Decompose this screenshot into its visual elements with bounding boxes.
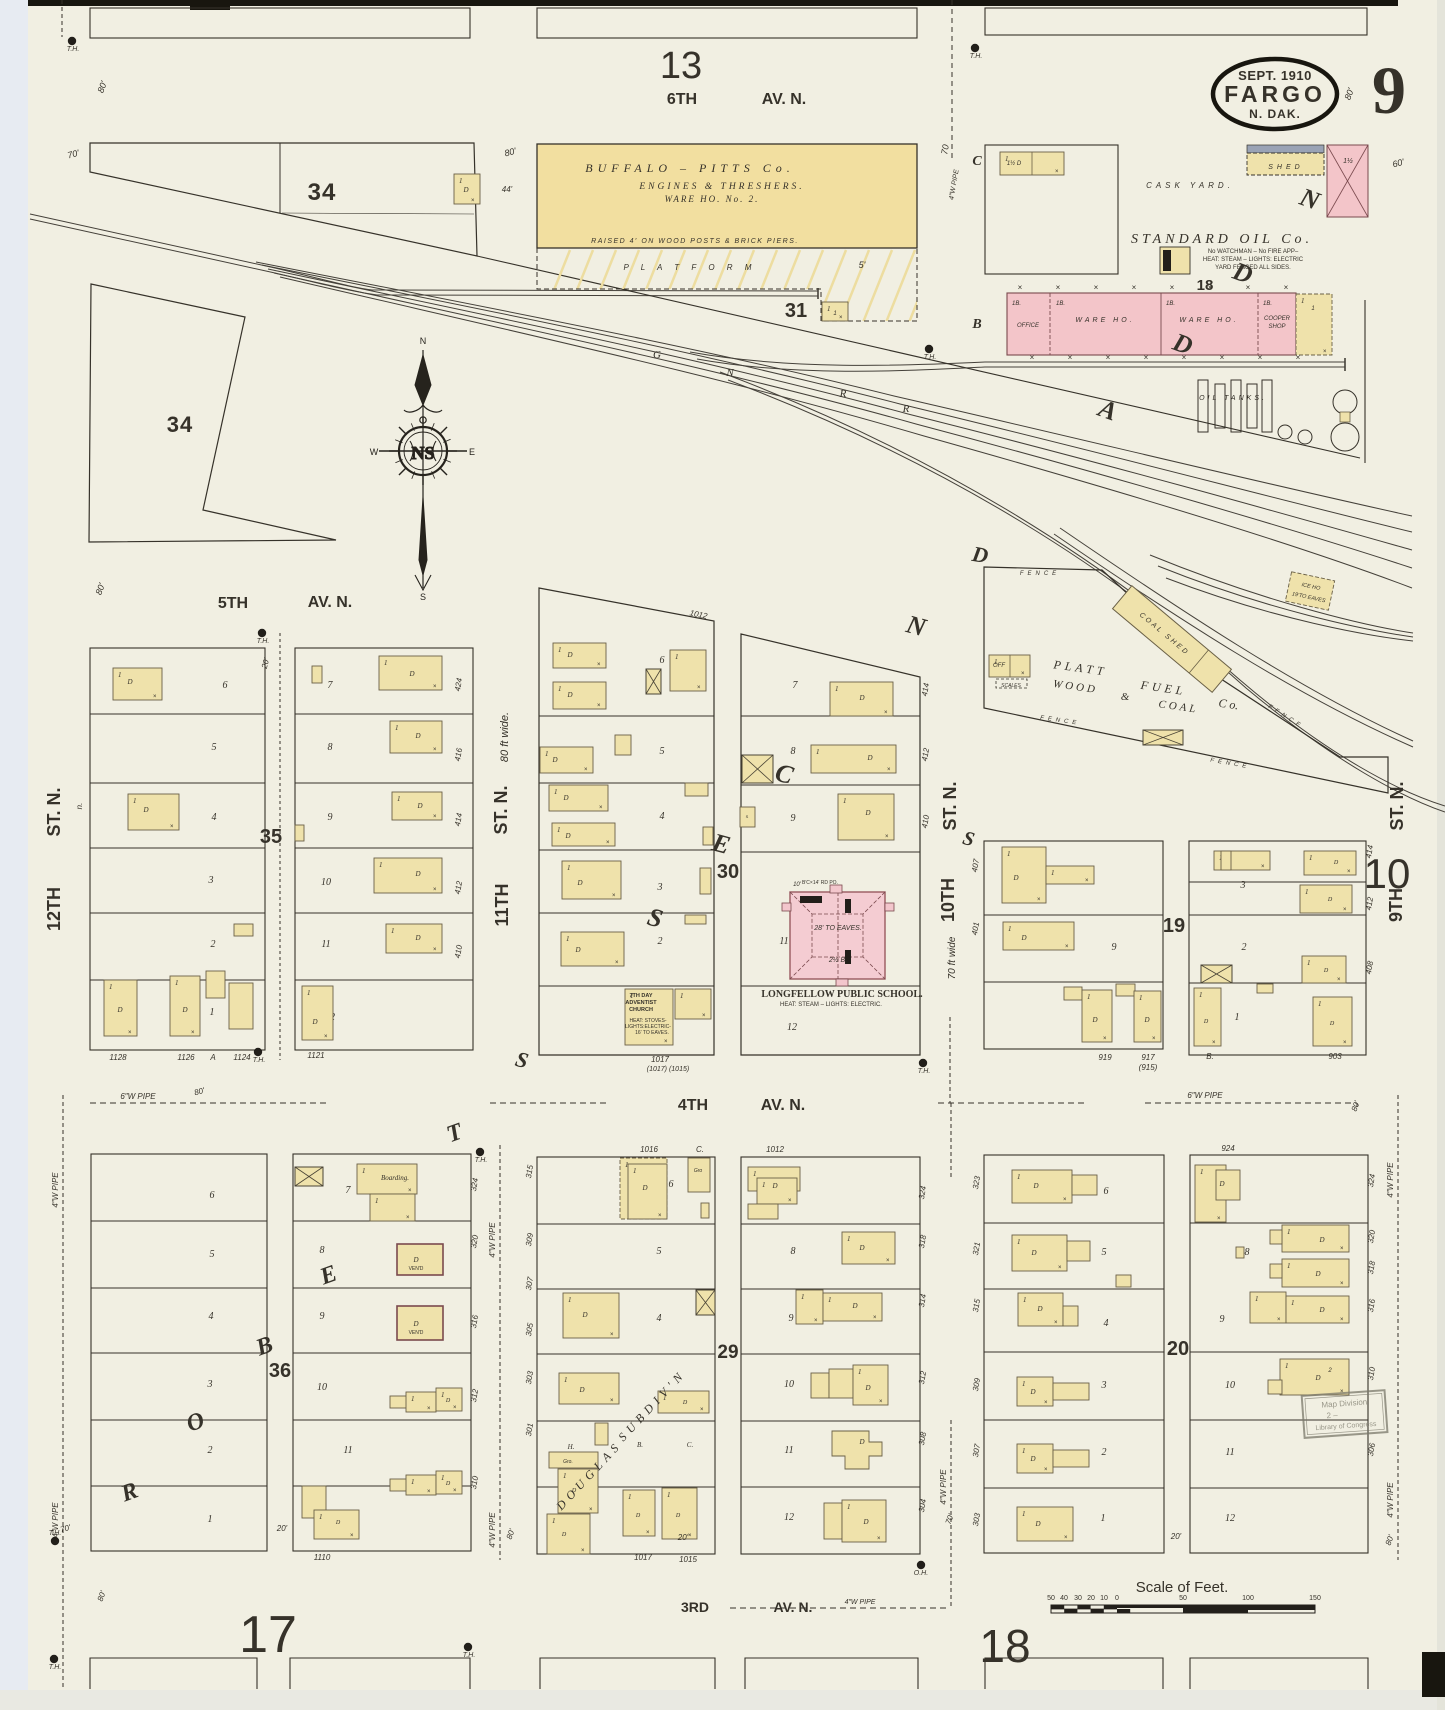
svg-text:1: 1: [564, 1376, 568, 1384]
svg-text:D: D: [1020, 934, 1026, 942]
svg-text:×: ×: [610, 1398, 614, 1404]
svg-text:1: 1: [1307, 959, 1311, 967]
svg-text:D: D: [574, 946, 580, 954]
svg-text:4″W PIPE: 4″W PIPE: [51, 1172, 60, 1208]
svg-text:D: D: [1318, 1236, 1324, 1244]
svg-text:T.H.: T.H.: [253, 1057, 266, 1064]
svg-text:×: ×: [433, 747, 437, 753]
svg-text:1: 1: [847, 1503, 851, 1511]
svg-text:STANDARD OIL Co.: STANDARD OIL Co.: [1131, 232, 1313, 247]
svg-text:D: D: [1029, 1455, 1035, 1463]
svg-text:T.H.: T.H.: [918, 1068, 931, 1075]
svg-text:D: D: [1218, 1180, 1224, 1188]
svg-text:1: 1: [1007, 850, 1011, 858]
svg-text:1: 1: [827, 305, 831, 313]
svg-text:20': 20': [677, 1533, 689, 1542]
svg-text:1B.: 1B.: [1056, 301, 1065, 307]
svg-text:5: 5: [660, 746, 665, 757]
svg-text:D: D: [311, 1018, 317, 1026]
svg-text:×: ×: [658, 1213, 662, 1219]
svg-text:1: 1: [558, 685, 562, 693]
svg-text:1121: 1121: [307, 1051, 324, 1060]
svg-text:N: N: [725, 367, 734, 379]
svg-text:×: ×: [1132, 283, 1137, 292]
svg-text:D: D: [412, 1320, 418, 1328]
svg-text:17: 17: [239, 1606, 297, 1664]
svg-text:FARGO: FARGO: [1224, 81, 1326, 107]
svg-text:2: 2: [1327, 1368, 1332, 1374]
svg-text:D: D: [576, 879, 582, 887]
svg-text:100: 100: [1242, 1595, 1254, 1602]
svg-text:50: 50: [1179, 1595, 1187, 1602]
svg-text:44': 44': [502, 185, 513, 194]
svg-text:917: 917: [1141, 1053, 1155, 1062]
svg-text:ST. N.: ST. N.: [1387, 781, 1407, 830]
svg-text:D: D: [566, 691, 572, 699]
svg-text:1: 1: [667, 1491, 671, 1499]
svg-text:1: 1: [628, 1493, 632, 1501]
svg-text:ST. N.: ST. N.: [940, 781, 960, 830]
svg-text:1B.: 1B.: [1263, 301, 1272, 307]
svg-text:RAISED 4′ ON WOOD POSTS & BRIC: RAISED 4′ ON WOOD POSTS & BRICK PIERS.: [591, 238, 799, 245]
svg-text:D: D: [858, 1244, 864, 1252]
svg-text:×: ×: [1021, 671, 1025, 677]
svg-text:903: 903: [1328, 1052, 1342, 1061]
svg-text:10: 10: [321, 877, 331, 888]
svg-text:FENCE: FENCE: [1020, 571, 1060, 577]
svg-text:34: 34: [167, 412, 193, 437]
svg-text:×: ×: [453, 1488, 457, 1494]
svg-text:×: ×: [1094, 283, 1099, 292]
svg-text:16′ TO EAVES.: 16′ TO EAVES.: [635, 1030, 669, 1036]
svg-text:×: ×: [1058, 1265, 1062, 1271]
svg-text:30: 30: [1074, 1595, 1082, 1602]
svg-text:COOPER: COOPER: [1264, 316, 1291, 322]
svg-text:×: ×: [877, 1536, 881, 1542]
svg-text:1016: 1016: [640, 1145, 658, 1154]
svg-text:×: ×: [873, 1315, 877, 1321]
svg-text:D: D: [1034, 1520, 1040, 1528]
svg-text:1: 1: [459, 177, 463, 185]
svg-text:D: D: [851, 1302, 857, 1310]
svg-text:1: 1: [762, 1181, 766, 1189]
svg-text:×: ×: [599, 805, 603, 811]
svg-text:R: R: [839, 388, 847, 400]
svg-text:B: B: [971, 317, 981, 332]
svg-text:9: 9: [791, 813, 796, 824]
svg-text:D: D: [445, 1481, 451, 1487]
svg-text:9: 9: [789, 1313, 794, 1324]
svg-text:4″W PIPE: 4″W PIPE: [51, 1502, 60, 1538]
svg-text:8: 8: [320, 1245, 325, 1256]
svg-text:×: ×: [1340, 1246, 1344, 1252]
svg-text:5: 5: [657, 1246, 662, 1257]
svg-text:20': 20': [1170, 1532, 1182, 1541]
svg-text:×: ×: [1220, 353, 1225, 362]
svg-text:4″W PIPE: 4″W PIPE: [1386, 1162, 1395, 1198]
svg-text:1: 1: [1287, 1228, 1291, 1236]
svg-text:WARE HO. No. 2.: WARE HO. No. 2.: [665, 194, 760, 204]
svg-text:×: ×: [597, 662, 601, 668]
svg-text:×: ×: [702, 1013, 706, 1019]
svg-text:D: D: [1029, 1388, 1035, 1396]
svg-text:4TH: 4TH: [678, 1097, 708, 1114]
svg-text:1: 1: [633, 1167, 637, 1175]
svg-text:×: ×: [581, 1548, 585, 1554]
svg-text:D: D: [462, 186, 468, 194]
svg-text:1: 1: [1017, 1173, 1021, 1181]
svg-text:9: 9: [1372, 52, 1406, 128]
svg-text:35: 35: [260, 826, 282, 848]
svg-text:HEAT: STEAM – LIGHTS: ELECTRIC: HEAT: STEAM – LIGHTS: ELECTRIC.: [780, 1002, 882, 1008]
svg-text:6: 6: [669, 1179, 674, 1190]
svg-text:×: ×: [697, 685, 701, 691]
svg-text:×: ×: [471, 198, 475, 204]
svg-text:2 –: 2 –: [1326, 1410, 1338, 1420]
svg-text:924: 924: [1221, 1144, 1235, 1153]
svg-text:n.: n.: [75, 803, 84, 810]
svg-text:9: 9: [1220, 1314, 1225, 1325]
svg-text:Gro: Gro: [694, 1168, 703, 1174]
svg-text:H.: H.: [567, 1443, 575, 1451]
svg-text:C.: C.: [696, 1145, 704, 1154]
svg-text:BUFFALO – PITTS Co.: BUFFALO – PITTS Co.: [585, 161, 794, 175]
svg-text:1: 1: [675, 653, 679, 661]
svg-text:D: D: [1012, 874, 1018, 882]
svg-text:D: D: [1318, 1306, 1324, 1314]
svg-text:4″W PIPE: 4″W PIPE: [488, 1222, 497, 1258]
svg-text:1: 1: [828, 1296, 832, 1304]
svg-text:1015: 1015: [679, 1555, 697, 1564]
svg-text:D: D: [414, 732, 420, 740]
svg-text:D: D: [675, 1513, 681, 1519]
svg-text:1: 1: [1200, 1168, 1204, 1176]
svg-text:D: D: [335, 1520, 341, 1526]
svg-text:4″W PIPE: 4″W PIPE: [1386, 1482, 1395, 1518]
svg-text:ADVENTIST: ADVENTIST: [625, 1000, 657, 1006]
svg-text:T.H.: T.H.: [67, 46, 80, 53]
svg-text:×: ×: [1054, 1320, 1058, 1326]
svg-text:P L A T F O R M: P L A T F O R M: [624, 263, 757, 272]
svg-text:×: ×: [1217, 1216, 1221, 1222]
svg-text:×: ×: [1068, 353, 1073, 362]
svg-text:D: D: [858, 694, 864, 702]
svg-text:11TH: 11TH: [492, 883, 512, 926]
svg-text:×: ×: [427, 1489, 431, 1495]
svg-text:1: 1: [1087, 993, 1091, 1001]
svg-text:×: ×: [884, 710, 888, 716]
svg-text:N. DAK.: N. DAK.: [1249, 107, 1301, 121]
svg-text:ST. N.: ST. N.: [44, 787, 64, 836]
svg-text:D: D: [641, 1184, 647, 1192]
svg-text:1: 1: [567, 864, 571, 872]
svg-text:N: N: [420, 336, 427, 346]
svg-text:Gro.: Gro.: [563, 1459, 573, 1465]
svg-text:1: 1: [568, 1296, 572, 1304]
svg-text:×: ×: [885, 834, 889, 840]
svg-text:×: ×: [887, 767, 891, 773]
svg-text:1: 1: [395, 724, 399, 732]
svg-text:1: 1: [1017, 1238, 1021, 1246]
svg-text:1: 1: [1255, 1295, 1259, 1303]
svg-text:1: 1: [1287, 1262, 1291, 1270]
svg-text:31: 31: [785, 300, 807, 322]
svg-text:1: 1: [1301, 297, 1305, 305]
svg-text:1: 1: [753, 1170, 757, 1178]
svg-text:1124: 1124: [233, 1053, 251, 1062]
svg-text:1: 1: [552, 1517, 556, 1525]
svg-text:1: 1: [1022, 1510, 1026, 1518]
svg-text:×: ×: [1340, 1281, 1344, 1287]
svg-text:1: 1: [307, 989, 311, 997]
svg-text:1: 1: [1309, 854, 1313, 862]
svg-text:OIL TANKS.: OIL TANKS.: [1199, 395, 1267, 402]
svg-text:D: D: [1323, 968, 1329, 974]
svg-text:A: A: [209, 1053, 215, 1062]
svg-text:×: ×: [1170, 283, 1175, 292]
svg-text:4: 4: [212, 812, 217, 823]
svg-text:×: ×: [433, 814, 437, 820]
svg-text:4″W PIPE: 4″W PIPE: [488, 1512, 497, 1548]
svg-text:×: ×: [646, 1530, 650, 1536]
svg-text:AV. N.: AV. N.: [308, 594, 352, 611]
svg-text:2: 2: [658, 936, 663, 947]
svg-text:D: D: [566, 651, 572, 659]
svg-text:CASK YARD.: CASK YARD.: [1146, 181, 1234, 190]
svg-text:D: D: [1091, 1016, 1097, 1024]
svg-text:×: ×: [606, 840, 610, 846]
svg-text:0: 0: [1115, 1595, 1119, 1602]
svg-text:×: ×: [1277, 1317, 1281, 1323]
svg-text:NS: NS: [411, 443, 434, 463]
svg-text:D: D: [564, 832, 570, 840]
svg-text:×: ×: [584, 767, 588, 773]
svg-text:T.H.: T.H.: [49, 1664, 62, 1671]
svg-text:×: ×: [1337, 977, 1341, 983]
svg-text:×: ×: [1343, 1040, 1347, 1046]
svg-text:D: D: [1143, 1016, 1149, 1024]
svg-text:D: D: [635, 1513, 641, 1519]
svg-text:×: ×: [1340, 1317, 1344, 1323]
svg-text:1: 1: [1305, 888, 1309, 896]
svg-text:20: 20: [1087, 1595, 1095, 1602]
svg-text:×: ×: [1152, 1036, 1156, 1042]
svg-text:1: 1: [566, 935, 570, 943]
svg-text:O.H.: O.H.: [914, 1570, 928, 1577]
svg-text:×: ×: [1018, 283, 1023, 292]
svg-text:1: 1: [133, 797, 137, 805]
svg-text:D: D: [581, 1311, 587, 1319]
svg-text:D: D: [562, 794, 568, 802]
svg-text:1: 1: [175, 979, 179, 987]
svg-text:1: 1: [858, 1368, 862, 1376]
svg-text:6″W PIPE: 6″W PIPE: [1187, 1091, 1223, 1100]
svg-text:×: ×: [128, 1030, 132, 1036]
svg-text:VEN'D: VEN'D: [409, 1266, 424, 1272]
svg-text:4: 4: [660, 811, 665, 822]
svg-text:11: 11: [1225, 1447, 1234, 1458]
svg-text:×: ×: [1261, 864, 1265, 870]
svg-text:34: 34: [308, 179, 337, 206]
svg-text:D: D: [1333, 860, 1339, 866]
svg-text:T.H.: T.H.: [257, 638, 270, 645]
svg-text:1: 1: [208, 1514, 213, 1525]
svg-text:VEN'D: VEN'D: [409, 1330, 424, 1336]
svg-text:×: ×: [1258, 353, 1263, 362]
svg-text:3: 3: [657, 882, 663, 893]
svg-text:10: 10: [1225, 1380, 1235, 1391]
svg-text:1: 1: [1311, 306, 1314, 312]
svg-text:11: 11: [321, 939, 330, 950]
svg-text:D: D: [682, 1400, 688, 1406]
svg-text:20: 20: [1167, 1338, 1189, 1360]
svg-text:1: 1: [1285, 1362, 1289, 1370]
svg-text:D: D: [412, 1256, 418, 1264]
svg-text:D: D: [181, 1006, 187, 1014]
svg-text:11: 11: [779, 936, 788, 947]
svg-text:1: 1: [1008, 925, 1012, 933]
svg-text:1012: 1012: [766, 1145, 784, 1154]
svg-text:1: 1: [1022, 1380, 1026, 1388]
svg-text:1: 1: [563, 1472, 567, 1480]
svg-text:5TH: 5TH: [218, 595, 248, 612]
svg-text:13: 13: [660, 45, 702, 87]
svg-text:D: D: [866, 754, 872, 762]
svg-text:1: 1: [109, 983, 113, 991]
svg-text:×: ×: [664, 1039, 668, 1045]
svg-text:AV. N.: AV. N.: [761, 1097, 805, 1114]
svg-text:80 ft wide.: 80 ft wide.: [499, 712, 511, 762]
svg-text:1: 1: [375, 1197, 379, 1205]
svg-text:×: ×: [1284, 283, 1289, 292]
svg-text:SCALES: SCALES: [1001, 683, 1021, 689]
svg-text:LONGFELLOW PUBLIC SCHOOL.: LONGFELLOW PUBLIC SCHOOL.: [761, 989, 923, 1000]
svg-text:G: G: [653, 349, 661, 361]
svg-text:T.H.: T.H.: [475, 1157, 488, 1164]
svg-text:3RD: 3RD: [681, 1599, 709, 1615]
svg-text:×: ×: [1044, 1400, 1048, 1406]
svg-text:1: 1: [362, 1167, 366, 1175]
svg-text:D: D: [1036, 1305, 1042, 1313]
svg-text:1: 1: [554, 788, 558, 796]
svg-text:1: 1: [411, 1478, 415, 1486]
svg-text:10: 10: [784, 1379, 794, 1390]
svg-text:×: ×: [1208, 283, 1213, 292]
svg-text:8: 8: [791, 1246, 796, 1257]
svg-text:×: ×: [1065, 944, 1069, 950]
svg-text:×: ×: [1044, 1467, 1048, 1473]
svg-text:AV. N.: AV. N.: [774, 1599, 813, 1615]
svg-text:36: 36: [269, 1360, 291, 1382]
svg-text:1: 1: [835, 685, 839, 693]
svg-text:1128: 1128: [109, 1053, 127, 1062]
svg-text:Scale of Feet.: Scale of Feet.: [1136, 1579, 1229, 1596]
svg-text:150: 150: [1309, 1595, 1321, 1602]
svg-text:4: 4: [1104, 1318, 1109, 1329]
svg-text:D: D: [126, 678, 132, 686]
svg-text:D: D: [1327, 897, 1333, 903]
svg-text:1: 1: [1235, 1012, 1240, 1023]
svg-text:×: ×: [1055, 169, 1059, 175]
svg-text:7TH DAY: 7TH DAY: [629, 993, 652, 999]
svg-text:1: 1: [1199, 991, 1203, 999]
svg-text:12: 12: [1225, 1513, 1235, 1524]
svg-text:×: ×: [1347, 869, 1351, 875]
svg-text:×: ×: [433, 684, 437, 690]
svg-text:1: 1: [816, 748, 820, 756]
svg-text:×: ×: [1106, 353, 1111, 362]
svg-text:×: ×: [1212, 1040, 1216, 1046]
svg-text:4: 4: [657, 1313, 662, 1324]
svg-text:50: 50: [1047, 1595, 1055, 1602]
svg-text:×: ×: [886, 1258, 890, 1264]
svg-text:3: 3: [208, 875, 214, 886]
svg-text:×: ×: [406, 1215, 410, 1221]
svg-text:×: ×: [427, 1406, 431, 1412]
svg-text:6: 6: [660, 655, 665, 666]
svg-text:SHOP: SHOP: [1268, 324, 1285, 330]
svg-text:×: ×: [700, 1407, 704, 1413]
svg-text:30: 30: [717, 861, 739, 883]
svg-text:4: 4: [209, 1311, 214, 1322]
svg-text:OFF: OFF: [993, 663, 1005, 669]
svg-text:×: ×: [589, 1507, 593, 1513]
svg-text:1: 1: [680, 992, 684, 1000]
svg-text:S: S: [746, 814, 749, 819]
svg-text:1½: 1½: [1343, 157, 1353, 165]
svg-text:×: ×: [1064, 1535, 1068, 1541]
svg-text:9: 9: [328, 812, 333, 823]
svg-text:D: D: [864, 809, 870, 817]
svg-text:3: 3: [1240, 880, 1246, 891]
svg-text:×: ×: [433, 947, 437, 953]
svg-text:×: ×: [839, 315, 843, 321]
svg-text:×: ×: [879, 1399, 883, 1405]
svg-text:2: 2: [208, 1445, 213, 1456]
svg-text:R: R: [902, 403, 910, 415]
svg-text:1: 1: [118, 671, 122, 679]
svg-text:1: 1: [843, 797, 847, 805]
svg-text:4″W PIPE: 4″W PIPE: [939, 1469, 948, 1505]
svg-text:S: S: [420, 592, 426, 602]
svg-text:×: ×: [610, 1332, 614, 1338]
svg-text:×: ×: [814, 1318, 818, 1324]
svg-text:D: D: [561, 1532, 567, 1538]
svg-text:×: ×: [788, 1198, 792, 1204]
svg-text:×: ×: [1103, 1036, 1107, 1042]
svg-text:1017: 1017: [634, 1553, 652, 1562]
svg-text:D: D: [1203, 1019, 1209, 1025]
svg-text:4″W PIPE: 4″W PIPE: [845, 1599, 876, 1606]
svg-text:W: W: [370, 447, 379, 457]
svg-text:Boarding.: Boarding.: [381, 1174, 409, 1182]
svg-text:2½ B.: 2½ B.: [828, 956, 847, 964]
svg-text:1B.: 1B.: [1012, 301, 1021, 307]
svg-text:10: 10: [1100, 1595, 1108, 1602]
svg-text:11: 11: [784, 1445, 793, 1456]
svg-text:×: ×: [408, 1188, 412, 1194]
svg-text:19: 19: [1163, 915, 1185, 937]
svg-text:5: 5: [210, 1249, 215, 1260]
svg-text:1: 1: [397, 795, 401, 803]
svg-text:×: ×: [597, 703, 601, 709]
svg-text:×: ×: [433, 887, 437, 893]
svg-text:8: 8: [328, 742, 333, 753]
svg-text:ENGINES & THRESHERS.: ENGINES & THRESHERS.: [638, 182, 804, 192]
svg-text:1: 1: [557, 826, 561, 834]
svg-text:×: ×: [1037, 897, 1041, 903]
svg-text:6″W PIPE: 6″W PIPE: [120, 1092, 156, 1101]
